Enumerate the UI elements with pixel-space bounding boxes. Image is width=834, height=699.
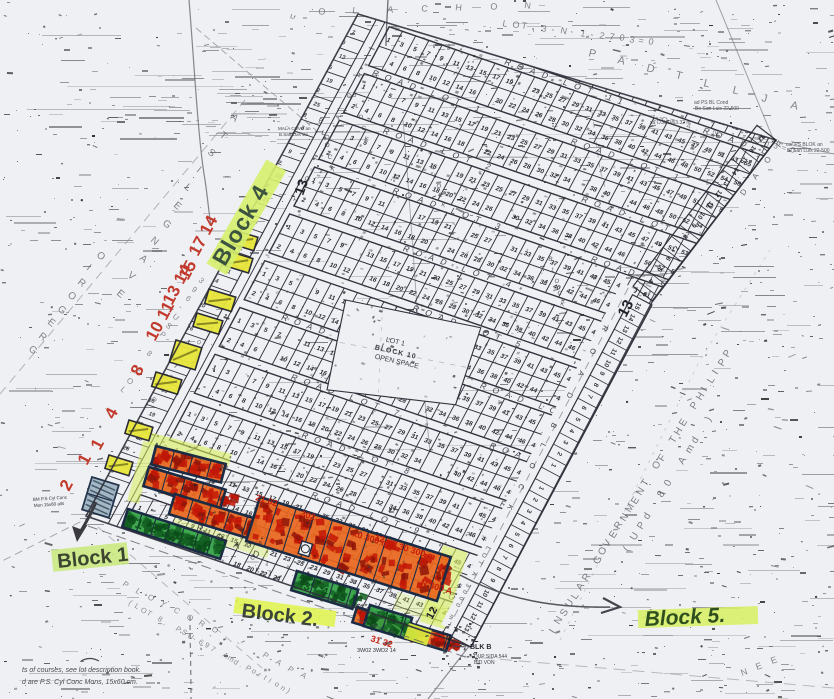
svg-text:N: N	[524, 0, 532, 11]
svg-text:BID VON: BID VON	[474, 660, 495, 666]
svg-text:O: O	[318, 6, 326, 17]
svg-text:B. San Luis 22-500: B. San Luis 22-500	[787, 148, 830, 154]
svg-text:3W02 3WD2 14: 3W02 3WD2 14	[357, 648, 396, 654]
svg-text:Lr: Lr	[290, 14, 296, 21]
svg-text:ts of courses, see lot descrip: ts of courses, see lot description book.	[22, 667, 141, 674]
svg-text:H: H	[455, 2, 463, 13]
svg-text:BLK B: BLK B	[470, 644, 491, 651]
svg-text:O: O	[490, 1, 498, 12]
svg-text:d are P.S. Cyl Conc Mons, 15x6: d are P.S. Cyl Conc Mons, 15x60 cm.	[22, 679, 138, 686]
svg-text:Bo San Luis 22-500: Bo San Luis 22-500	[695, 106, 739, 112]
svg-text:Block 5.: Block 5.	[644, 604, 726, 631]
